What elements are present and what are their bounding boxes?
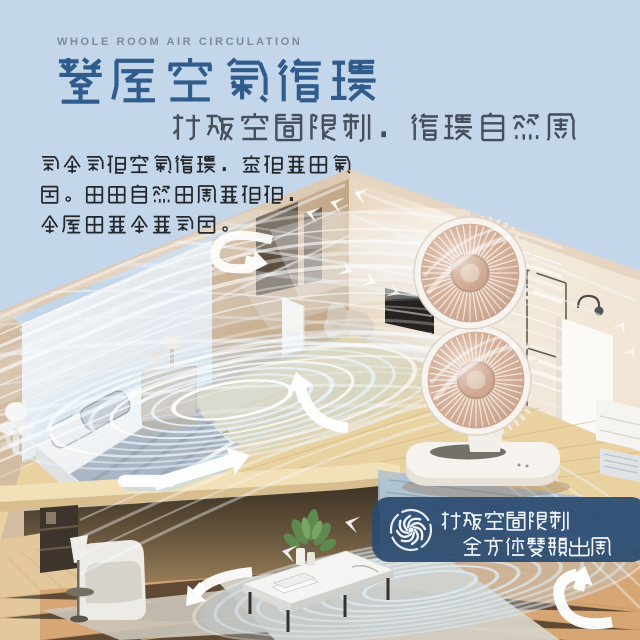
svg-text:WHOLE ROOM AIR CIRCULATION: WHOLE ROOM AIR CIRCULATION: [57, 36, 302, 48]
